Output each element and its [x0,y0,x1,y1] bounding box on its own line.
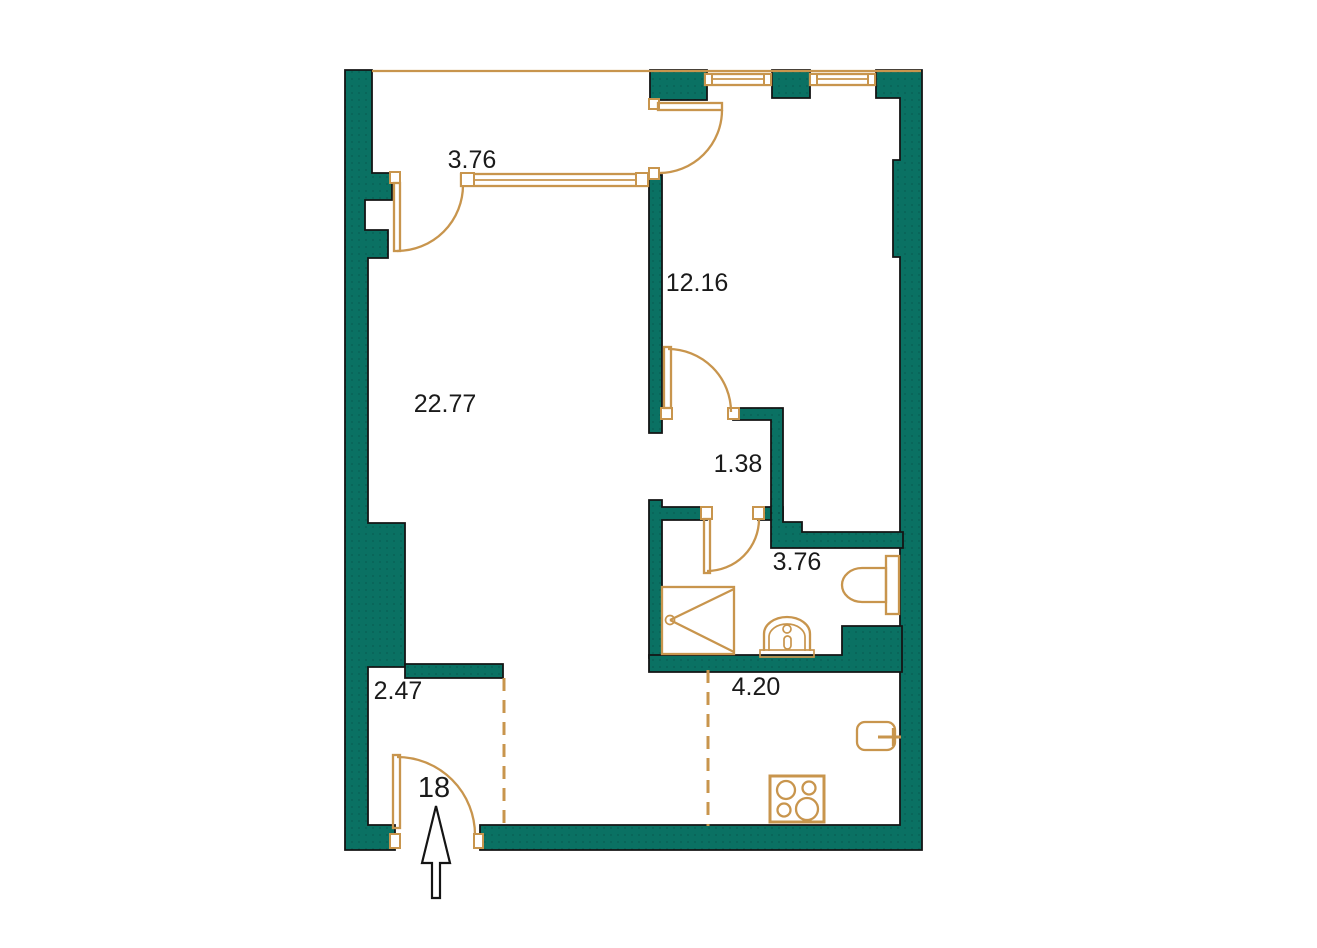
kitchen-sink [857,722,901,750]
room-label-loggia: 3.76 [448,146,497,174]
apartment-number-label: 18 [418,772,450,804]
window-2 [810,74,875,85]
room-label-living: 22.77 [414,390,477,418]
bathroom-sink [760,617,814,657]
door-loggia-bedroom [649,99,722,179]
door-loggia [390,172,463,251]
glazed-partition [461,173,648,186]
entrance-direction-arrow [422,806,450,898]
room-label-entry: 2.47 [374,677,423,705]
floor-plan-canvas: 3.76 12.16 22.77 1.38 3.76 2.47 4.20 18 [0,0,1317,948]
door-bathroom [701,507,764,573]
room-label-kitchen: 4.20 [732,673,781,701]
room-label-hall: 1.38 [714,450,763,478]
room-label-bedroom: 12.16 [666,269,729,297]
stove [770,776,824,822]
window-1 [705,74,771,85]
shower [662,587,734,654]
floor-plan: 3.76 12.16 22.77 1.38 3.76 2.47 4.20 18 [0,0,1317,948]
room-label-bathroom: 3.76 [773,548,822,576]
door-bedroom-hall [661,347,739,419]
toilet [842,556,899,614]
